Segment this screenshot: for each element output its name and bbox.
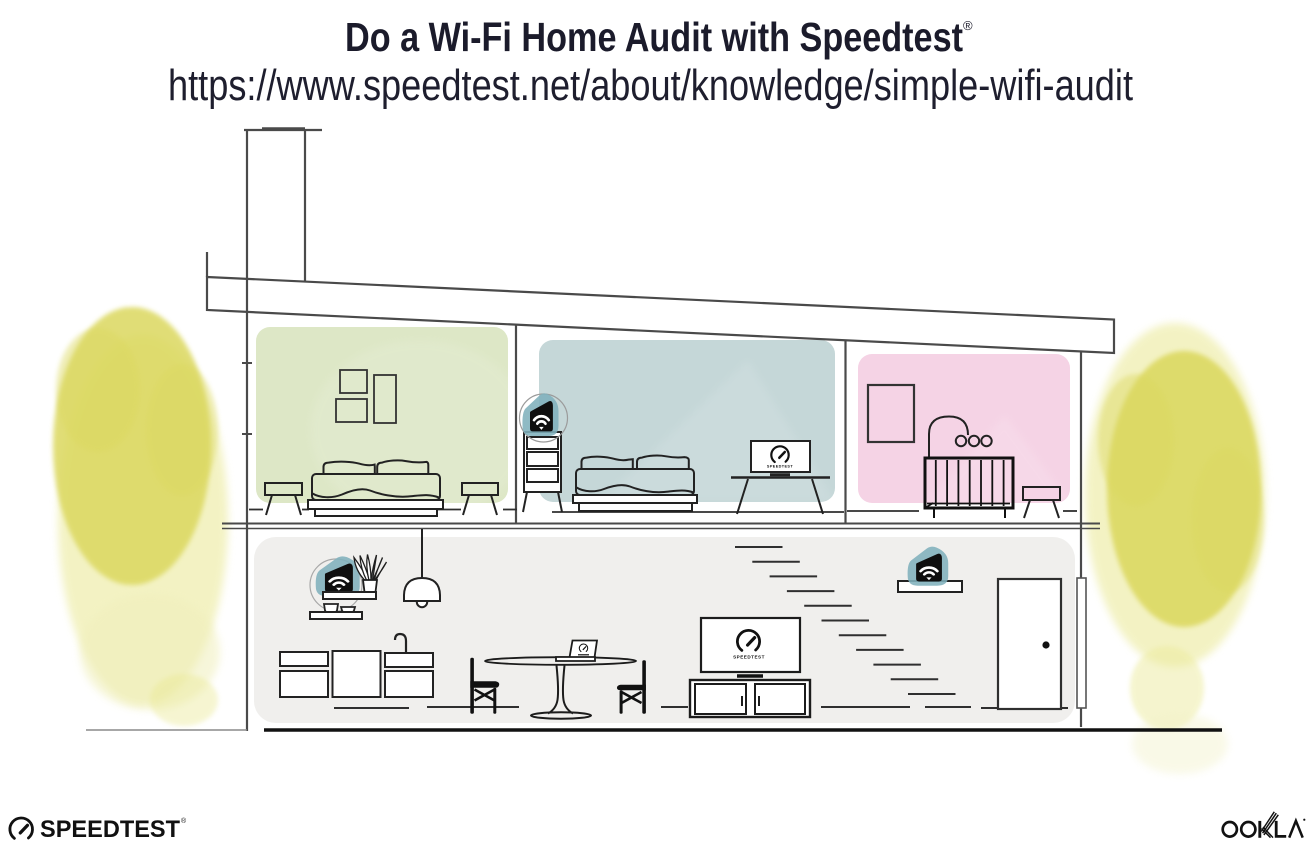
svg-text:®: ® <box>181 817 187 825</box>
svg-text:Do a Wi-Fi Home Audit with Spe: Do a Wi-Fi Home Audit with Speedtest <box>345 14 963 60</box>
svg-text:®: ® <box>963 18 973 33</box>
svg-text:SPEEDTEST: SPEEDTEST <box>733 655 765 660</box>
svg-text:https://www.speedtest.net/abou: https://www.speedtest.net/about/knowledg… <box>168 61 1133 110</box>
svg-text:SPEEDTEST: SPEEDTEST <box>40 816 180 843</box>
svg-text:SPEEDTEST: SPEEDTEST <box>767 465 793 469</box>
